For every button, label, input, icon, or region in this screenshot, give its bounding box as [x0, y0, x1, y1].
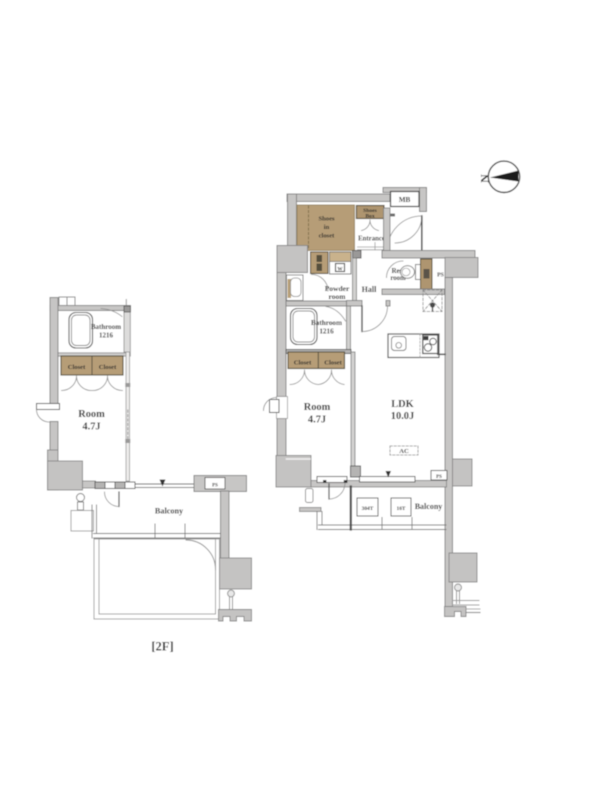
svg-text:1216: 1216: [319, 328, 334, 336]
svg-text:Bathroom: Bathroom: [311, 319, 342, 327]
svg-text:Box: Box: [365, 214, 375, 220]
svg-text:Balcony: Balcony: [155, 507, 184, 516]
svg-text:PS: PS: [437, 273, 444, 279]
svg-text:N: N: [478, 174, 492, 183]
svg-text:Bathroom: Bathroom: [91, 323, 121, 331]
svg-text:Closet: Closet: [324, 360, 342, 367]
svg-text:Closet: Closet: [294, 360, 312, 367]
svg-text:[2F]: [2F]: [151, 640, 173, 654]
svg-text:room: room: [329, 292, 347, 301]
svg-text:Entrance: Entrance: [358, 236, 385, 243]
svg-text:LDK: LDK: [391, 399, 414, 410]
svg-text:Closet: Closet: [68, 364, 86, 371]
svg-text:AC: AC: [399, 448, 409, 455]
svg-text:PS: PS: [436, 475, 442, 480]
svg-text:Room: Room: [78, 409, 105, 420]
svg-text:in: in: [324, 224, 330, 231]
svg-text:10.0J: 10.0J: [391, 411, 414, 422]
svg-text:4.7J: 4.7J: [82, 422, 100, 433]
svg-text:PS: PS: [212, 484, 218, 489]
svg-text:16T: 16T: [397, 506, 406, 512]
svg-text:Room: Room: [304, 402, 331, 413]
svg-text:Closet: Closet: [99, 364, 117, 371]
svg-text:closet: closet: [319, 233, 336, 240]
svg-text:Shoes: Shoes: [318, 216, 335, 223]
svg-text:MB: MB: [399, 196, 411, 204]
svg-text:Hall: Hall: [362, 285, 377, 294]
svg-text:304T: 304T: [362, 506, 374, 512]
svg-text:W: W: [337, 267, 343, 273]
svg-text:1216: 1216: [99, 332, 114, 340]
svg-text:4.7J: 4.7J: [308, 415, 326, 426]
svg-text:Balcony: Balcony: [415, 502, 443, 511]
